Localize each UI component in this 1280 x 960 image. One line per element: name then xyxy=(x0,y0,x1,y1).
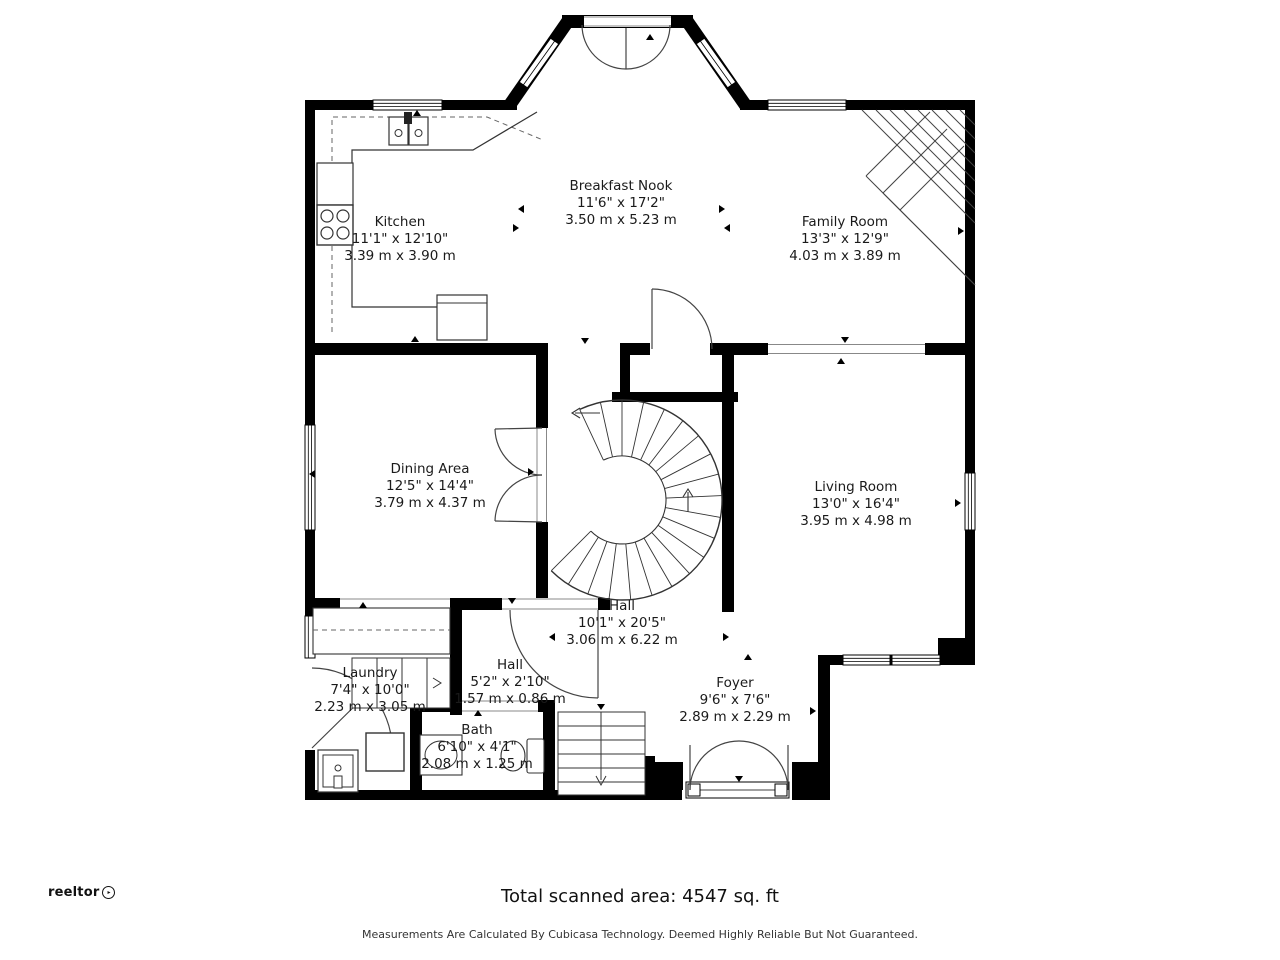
room-label-dining-area: Dining Area 12'5" x 14'4" 3.79 m x 4.37 … xyxy=(374,461,486,512)
room-dim-imperial: 6'10" x 4'1" xyxy=(421,739,533,756)
stair-direction-arrows xyxy=(572,408,693,512)
room-name: Breakfast Nook xyxy=(565,178,677,195)
room-dim-imperial: 5'2" x 2'10" xyxy=(454,674,566,691)
room-name: Bath xyxy=(421,722,533,739)
room-dim-metric: 2.89 m x 2.29 m xyxy=(679,709,791,726)
faucet xyxy=(404,112,412,124)
floorplan-drawing xyxy=(0,0,1280,960)
main-staircase xyxy=(558,712,645,795)
room-dim-imperial: 10'1" x 20'5" xyxy=(566,615,678,632)
room-label-foyer: Foyer 9'6" x 7'6" 2.89 m x 2.29 m xyxy=(679,675,791,726)
room-label-kitchen: Kitchen 11'1" x 12'10" 3.39 m x 3.90 m xyxy=(344,214,456,265)
room-dim-imperial: 13'3" x 12'9" xyxy=(789,231,901,248)
bay-door-right-arc xyxy=(626,25,670,69)
room-dim-metric: 1.57 m x 0.86 m xyxy=(454,691,566,708)
room-name: Kitchen xyxy=(344,214,456,231)
dining-door-upper-arc xyxy=(495,429,542,475)
room-name: Family Room xyxy=(789,214,901,231)
room-label-family-room: Family Room 13'3" x 12'9" 4.03 m x 3.89 … xyxy=(789,214,901,265)
room-label-laundry: Laundry 7'4" x 10'0" 2.23 m x 3.05 m xyxy=(314,665,426,716)
counter-edge xyxy=(352,112,537,307)
spiral-staircase xyxy=(551,400,722,600)
room-name: Dining Area xyxy=(374,461,486,478)
room-dim-metric: 3.50 m x 5.23 m xyxy=(565,212,677,229)
room-dim-imperial: 9'6" x 7'6" xyxy=(679,692,791,709)
washer xyxy=(366,733,404,771)
room-dim-metric: 3.95 m x 4.98 m xyxy=(800,513,912,530)
room-dim-imperial: 7'4" x 10'0" xyxy=(314,682,426,699)
room-dim-metric: 4.03 m x 3.89 m xyxy=(789,248,901,265)
room-dim-imperial: 11'6" x 17'2" xyxy=(565,195,677,212)
room-label-bath: Bath 6'10" x 4'1" 2.08 m x 1.25 m xyxy=(421,722,533,773)
room-dim-imperial: 12'5" x 14'4" xyxy=(374,478,486,495)
room-dim-imperial: 13'0" x 16'4" xyxy=(800,496,912,513)
room-label-hall-small: Hall 5'2" x 2'10" 1.57 m x 0.86 m xyxy=(454,657,566,708)
room-label-breakfast-nook: Breakfast Nook 11'6" x 17'2" 3.50 m x 5.… xyxy=(565,178,677,229)
kitchen-island xyxy=(437,295,487,340)
room-label-hall: Hall 10'1" x 20'5" 3.06 m x 6.22 m xyxy=(566,598,678,649)
bay-window-left xyxy=(519,38,558,88)
fridge xyxy=(317,163,353,205)
entry-door-frame xyxy=(686,782,789,798)
room-name: Hall xyxy=(566,598,678,615)
room-dim-metric: 2.08 m x 1.25 m xyxy=(421,756,533,773)
room-dim-imperial: 11'1" x 12'10" xyxy=(344,231,456,248)
bay-window-right xyxy=(696,38,735,88)
laundry-counter xyxy=(313,608,450,654)
floorplan-page: Kitchen 11'1" x 12'10" 3.39 m x 3.90 m B… xyxy=(0,0,1280,960)
room-dim-metric: 2.23 m x 3.05 m xyxy=(314,699,426,716)
dining-door-lower-arc xyxy=(495,475,542,521)
room-label-living-room: Living Room 13'0" x 16'4" 3.95 m x 4.98 … xyxy=(800,479,912,530)
room-dim-metric: 3.06 m x 6.22 m xyxy=(566,632,678,649)
room-dim-metric: 3.39 m x 3.90 m xyxy=(344,248,456,265)
room-name: Living Room xyxy=(800,479,912,496)
measurement-disclaimer: Measurements Are Calculated By Cubicasa … xyxy=(0,928,1280,941)
room-name: Foyer xyxy=(679,675,791,692)
nook-hall-door-arc xyxy=(652,289,712,349)
room-name: Laundry xyxy=(314,665,426,682)
room-dim-metric: 3.79 m x 4.37 m xyxy=(374,495,486,512)
room-name: Hall xyxy=(454,657,566,674)
bay-door-left-arc xyxy=(582,25,626,69)
total-scanned-area: Total scanned area: 4547 sq. ft xyxy=(0,886,1280,907)
